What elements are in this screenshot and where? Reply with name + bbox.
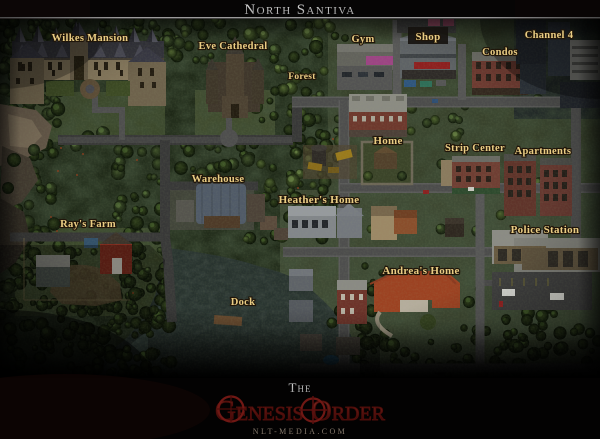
svg-text:Condos: Condos [482,47,518,58]
svg-text:Warehouse: Warehouse [192,174,245,185]
svg-text:Home: Home [373,135,402,147]
svg-text:Police Station: Police Station [511,224,580,236]
svg-text:Heather's Home: Heather's Home [279,194,360,206]
svg-text:NLT-MEDIA.COM: NLT-MEDIA.COM [253,427,347,436]
svg-text:Apartments: Apartments [515,146,572,157]
svg-text:Andrea's Home: Andrea's Home [382,265,459,277]
svg-text:Channel 4: Channel 4 [525,30,574,41]
svg-text:Ray's Farm: Ray's Farm [60,219,116,230]
svg-text:Strip Center: Strip Center [445,143,505,154]
svg-text:The: The [289,380,312,395]
svg-text:Gym: Gym [351,34,374,45]
svg-text:Eve Cathedral: Eve Cathedral [199,41,268,52]
svg-text:Forest: Forest [288,72,316,82]
svg-text:Wilkes Mansion: Wilkes Mansion [52,33,129,44]
svg-text:Dock: Dock [231,297,256,308]
svg-text:North Santiva: North Santiva [244,2,355,18]
svg-text:Shop: Shop [415,31,440,43]
